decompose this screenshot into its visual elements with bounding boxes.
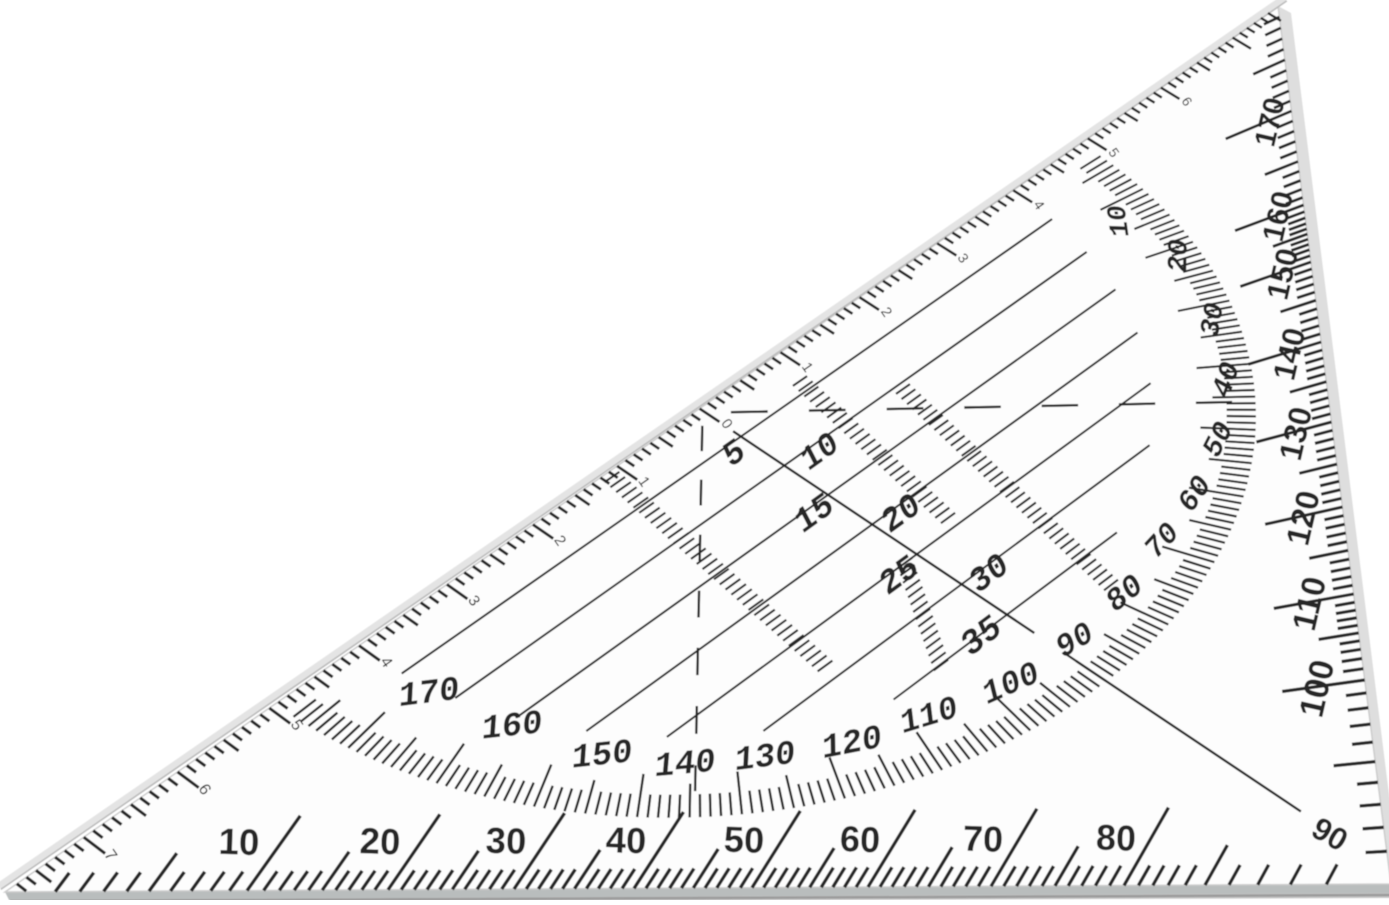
svg-text:170: 170: [398, 671, 461, 718]
svg-text:10: 10: [218, 821, 260, 863]
svg-text:150: 150: [570, 733, 634, 779]
svg-text:20: 20: [1164, 236, 1195, 276]
svg-text:70: 70: [962, 818, 1004, 860]
svg-text:20: 20: [359, 820, 401, 862]
svg-text:40: 40: [605, 819, 647, 861]
svg-text:80: 80: [1095, 817, 1136, 858]
svg-text:130: 130: [734, 735, 797, 782]
svg-text:160: 160: [480, 704, 544, 750]
svg-text:140: 140: [653, 743, 717, 787]
svg-text:30: 30: [485, 820, 527, 862]
svg-text:50: 50: [723, 819, 765, 861]
svg-text:60: 60: [839, 818, 881, 860]
svg-text:10: 10: [1102, 204, 1138, 237]
